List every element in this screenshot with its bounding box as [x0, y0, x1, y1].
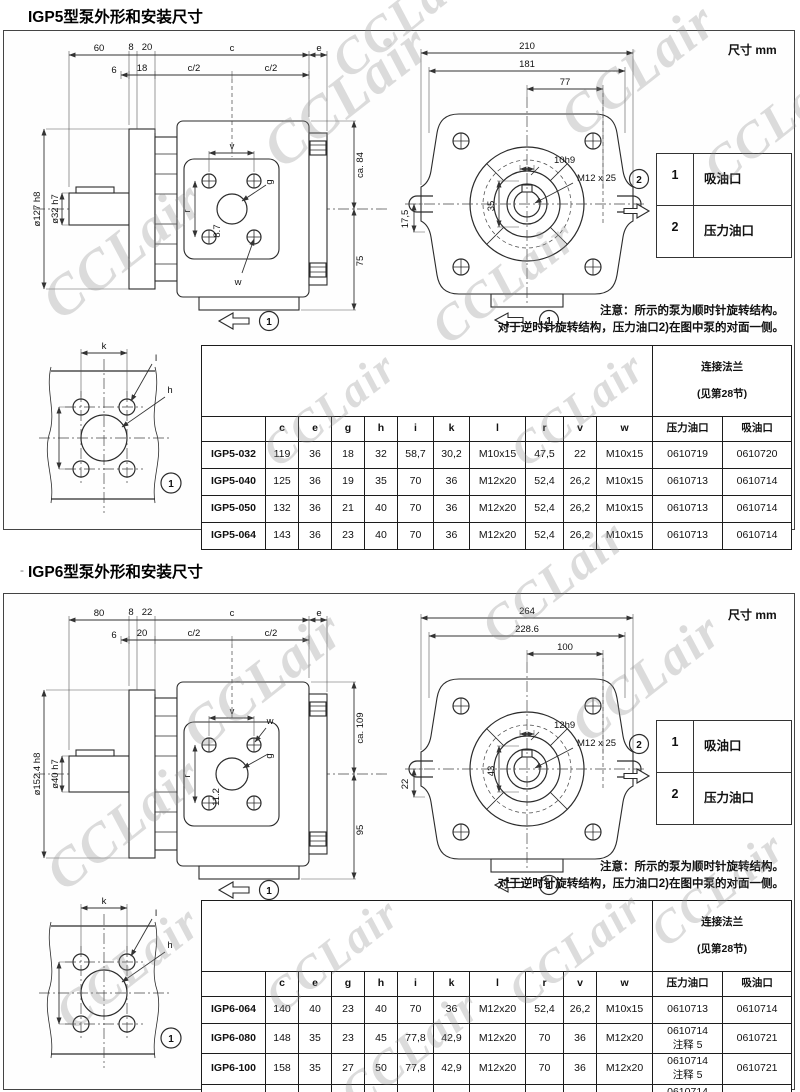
column-header: 吸油口 — [723, 972, 792, 997]
table-cell: 26,2 — [564, 469, 597, 496]
dim-label: ca. 84 — [355, 152, 366, 178]
table-row: IGP5-0641433623407036M12x2052,426,2M10x1… — [202, 523, 792, 550]
table-cell: 36 — [434, 496, 470, 523]
pump-front-geometry — [405, 97, 645, 307]
dim-label: l — [155, 353, 157, 364]
table-cell: 125 — [266, 469, 299, 496]
dim-label: ca. 109 — [355, 712, 366, 743]
column-header: 压力油口 — [653, 417, 723, 442]
column-header: i — [398, 972, 434, 997]
legend-row: 1 吸油口 — [657, 721, 792, 773]
column-header: 吸油口 — [723, 417, 792, 442]
port-legend-table: 1 吸油口 2 压力油口 — [656, 153, 792, 258]
table-cell: M12x20 — [470, 1054, 526, 1084]
dim-label: c — [230, 43, 235, 54]
legend-row: 2 压力油口 — [657, 206, 792, 258]
dim-label: w — [234, 277, 242, 288]
dim-label: M12 x 25 — [577, 173, 616, 184]
table-cell: 23 — [332, 523, 365, 550]
table-cell: 52,4 — [526, 997, 564, 1024]
table-row: IGP6-0641404023407036M12x2052,426,2M10x1… — [202, 997, 792, 1024]
table-cell: 47,5 — [526, 442, 564, 469]
dim-label: ø127 h8 — [32, 192, 43, 227]
column-header: l — [470, 972, 526, 997]
table-cell: 42,9 — [434, 1084, 470, 1092]
table-cell: M10x15 — [597, 442, 653, 469]
column-header: h — [365, 417, 398, 442]
table-row: IGP5-0401253619357036M12x2052,426,2M10x1… — [202, 469, 792, 496]
dim-label: 35 — [486, 201, 497, 212]
igp6-side-view-drawing: 80 8 22 c e 6 20 c/2 c/2 ø152.4 h8 ø40 h… — [14, 604, 399, 899]
table-cell: 36 — [564, 1084, 597, 1092]
table-cell: 0610713 — [653, 997, 723, 1024]
dimension-lines — [59, 904, 165, 1024]
legend-num: 1 — [657, 721, 694, 773]
dim-label: 43 — [486, 766, 497, 777]
table-cell: M10x15 — [597, 523, 653, 550]
column-header — [202, 972, 266, 997]
column-header: g — [332, 417, 365, 442]
column-header: i — [398, 417, 434, 442]
unit-label: 尺寸 mm — [728, 41, 777, 58]
table-cell: 50 — [365, 1084, 398, 1092]
igp6-front-view-drawing: 264 228.6 100 12h9 M12 x 25 43 22 2 1 — [399, 604, 651, 896]
table-cell: 36 — [434, 997, 470, 1024]
dim-label: c/2 — [188, 628, 201, 639]
table-cell: 140 — [266, 997, 299, 1024]
table-cell: 70 — [526, 1084, 564, 1092]
table-cell: 70 — [398, 997, 434, 1024]
dim-label: 181 — [519, 59, 535, 70]
table-row: IGP6-10015835275077,842,9M12x207036M12x2… — [202, 1054, 792, 1084]
table-cell: 0610721 — [723, 1024, 792, 1054]
table-cell: 0610714 — [723, 469, 792, 496]
pump-side-geometry — [34, 121, 390, 310]
table-cell: 36 — [434, 469, 470, 496]
table-cell: 36 — [299, 496, 332, 523]
dim-label: v — [230, 706, 235, 717]
table-column-header-row: c e g h i k l r v w 压力油口 吸油口 — [202, 972, 792, 997]
dim-label: 22 — [400, 779, 411, 790]
row-model-label: IGP5-064 — [202, 523, 266, 550]
dim-label: 6 — [111, 65, 116, 76]
dim-label: M12 x 25 — [577, 738, 616, 749]
column-header: e — [299, 417, 332, 442]
dim-label: 8.7 — [212, 224, 223, 237]
column-header: g — [332, 972, 365, 997]
dim-label: 10h9 — [554, 155, 575, 166]
section-title-igp5: IGP5型泵外形和安装尺寸 — [28, 5, 203, 27]
table-cell: 0610713 — [653, 469, 723, 496]
dim-label: g — [264, 179, 275, 184]
table-cell: 36 — [299, 523, 332, 550]
table-cell: 0610713 — [653, 523, 723, 550]
table-cell: 0610713 — [653, 496, 723, 523]
legend-label: 压力油口 — [694, 206, 792, 258]
table-cell: 26,2 — [564, 523, 597, 550]
table-row: IGP5-0501323621407036M12x2052,426,2M10x1… — [202, 496, 792, 523]
table-cell: 0610721 — [723, 1054, 792, 1084]
pump-front-geometry — [405, 662, 645, 872]
dim-label: r — [182, 774, 193, 777]
table-cell: 40 — [299, 1084, 332, 1092]
table-cell: M10x15 — [597, 469, 653, 496]
dim-label: 8 — [128, 607, 133, 618]
table-cell: 50 — [365, 1054, 398, 1084]
table-cell: M10x15 — [597, 997, 653, 1024]
dim-label: c/2 — [265, 63, 278, 74]
table-cell: 58,7 — [398, 442, 434, 469]
table-cell: 52,4 — [526, 496, 564, 523]
table-cell: M12x20 — [470, 469, 526, 496]
rotation-note: 注意：所示的泵为顺时针旋转结构。 对于逆时针旋转结构，压力油口2)在图中泵的对面… — [498, 859, 784, 894]
column-header — [202, 417, 266, 442]
column-header: v — [564, 417, 597, 442]
table-cell: 52,4 — [526, 523, 564, 550]
empty-header-cell — [202, 901, 653, 972]
table-cell: 70 — [398, 469, 434, 496]
note-line: 注意：所示的泵为顺时针旋转结构。 — [498, 859, 784, 876]
table-cell: 36 — [434, 523, 470, 550]
dim-label: 8 — [128, 42, 133, 53]
table-cell: 23 — [332, 1024, 365, 1054]
dim-label: h — [167, 385, 172, 396]
table-column-header-row: c e g h i k l r v w 压力油口 吸油口 — [202, 417, 792, 442]
row-model-label: IGP5-040 — [202, 469, 266, 496]
table-row: IGP6-08014835234577,842,9M12x207036M12x2… — [202, 1024, 792, 1054]
table-cell: 148 — [266, 1024, 299, 1054]
column-header: w — [597, 972, 653, 997]
igp5-flange-detail-drawing: k l h 1 — [19, 331, 194, 526]
column-header: k — [434, 972, 470, 997]
dim-label: c/2 — [265, 628, 278, 639]
rotation-note: 注意：所示的泵为顺时针旋转结构。 对于逆时针旋转结构，压力油口2)在图中泵的对面… — [498, 303, 784, 338]
port-number: 1 — [266, 317, 272, 328]
dim-label: c — [230, 608, 235, 619]
dim-label: g — [264, 753, 275, 758]
igp6-dimension-table: 连接法兰 (见第28节) c e g h i k l r v w 压力油口 吸油… — [201, 900, 792, 1092]
table-cell: 0610719 — [653, 442, 723, 469]
igp5-drawing-frame: 尺寸 mm — [3, 30, 795, 530]
note-line: 注意：所示的泵为顺时针旋转结构。 — [498, 303, 784, 320]
dim-label: r — [182, 209, 193, 212]
dim-label: 210 — [519, 41, 535, 52]
table-cell: 27 — [332, 1054, 365, 1084]
table-cell: 45 — [365, 1024, 398, 1054]
legend-row: 1 吸油口 — [657, 154, 792, 206]
pump-side-geometry — [34, 682, 390, 879]
table-cell: 42,9 — [434, 1024, 470, 1054]
column-header: l — [470, 417, 526, 442]
table-cell: 30,2 — [434, 442, 470, 469]
column-header: c — [266, 972, 299, 997]
view-number: 1 — [168, 479, 174, 490]
flange-header-sub: (见第28节) — [654, 388, 790, 402]
dim-label: 17,5 — [400, 210, 411, 229]
table-cell: 77,8 — [398, 1024, 434, 1054]
dim-label: e — [316, 608, 321, 619]
note-line: 对于逆时针旋转结构，压力油口2)在图中泵的对面一侧。 — [498, 876, 784, 893]
table-cell: M10x15 — [470, 442, 526, 469]
table-header-row: 连接法兰 (见第28节) — [202, 346, 792, 417]
table-cell: 70 — [526, 1054, 564, 1084]
column-header: e — [299, 972, 332, 997]
table-cell: 0610714 — [723, 523, 792, 550]
table-cell: 0610714 — [723, 997, 792, 1024]
datasheet-page: CCLair CCLair CCLair CCLair CCLair CCLai… — [0, 0, 800, 1092]
flange-header-sub: (见第28节) — [654, 943, 790, 957]
row-model-label: IGP5-050 — [202, 496, 266, 523]
dim-label: 95 — [355, 825, 366, 836]
table-cell: 23 — [332, 997, 365, 1024]
view-number: 1 — [168, 1034, 174, 1045]
table-cell: 40 — [365, 523, 398, 550]
table-row: IGP6-12517040305077,842,9M12x207036M12x2… — [202, 1084, 792, 1092]
column-header: h — [365, 972, 398, 997]
dim-label: 75 — [355, 256, 366, 267]
dim-label: w — [266, 716, 274, 727]
table-cell: 0610714 — [723, 496, 792, 523]
column-header: 压力油口 — [653, 972, 723, 997]
table-cell: 70 — [398, 496, 434, 523]
table-cell: 18 — [332, 442, 365, 469]
igp5-side-view-drawing: 60 8 20 c e 6 18 c/2 c/2 ø127 h8 ø32 h7 … — [14, 39, 399, 334]
table-cell: 77,8 — [398, 1084, 434, 1092]
table-cell: 0610714 注释 5 — [653, 1024, 723, 1054]
table-cell: M12x20 — [597, 1054, 653, 1084]
dim-label: ø40 h7 — [50, 759, 61, 789]
legend-label: 压力油口 — [694, 773, 792, 825]
section-title-igp6: IGP6型泵外形和安装尺寸 — [28, 560, 203, 582]
dim-label: 12h9 — [554, 720, 575, 731]
table-cell: 0610714 注释 5 — [653, 1084, 723, 1092]
table-cell: 0610721 — [723, 1084, 792, 1092]
dimension-lines — [59, 349, 165, 469]
table-cell: 0610720 — [723, 442, 792, 469]
column-header: w — [597, 417, 653, 442]
column-header: r — [526, 972, 564, 997]
dim-label: h — [167, 940, 172, 951]
dim-label: 264 — [519, 606, 535, 617]
dim-label: 77 — [560, 77, 571, 88]
table-cell: 132 — [266, 496, 299, 523]
table-cell: 36 — [564, 1024, 597, 1054]
table-cell: M12x20 — [470, 523, 526, 550]
table-cell: 35 — [299, 1024, 332, 1054]
port-legend-table: 1 吸油口 2 压力油口 — [656, 720, 792, 825]
dim-label: ø152.4 h8 — [32, 753, 43, 796]
table-cell: 36 — [299, 469, 332, 496]
table-cell: 21 — [332, 496, 365, 523]
table-cell: 22 — [564, 442, 597, 469]
column-header: v — [564, 972, 597, 997]
dim-label: 228.6 — [515, 624, 539, 635]
port-number: 2 — [636, 175, 642, 186]
column-header: k — [434, 417, 470, 442]
legend-label: 吸油口 — [694, 721, 792, 773]
column-header: r — [526, 417, 564, 442]
row-model-label: IGP6-080 — [202, 1024, 266, 1054]
legend-label: 吸油口 — [694, 154, 792, 206]
flange-header-title: 连接法兰 — [654, 916, 790, 930]
table-cell: 35 — [299, 1054, 332, 1084]
table-cell: 77,8 — [398, 1054, 434, 1084]
table-cell: 143 — [266, 523, 299, 550]
table-cell: 26,2 — [564, 496, 597, 523]
legend-num: 2 — [657, 773, 694, 825]
flange-header-cell: 连接法兰 (见第28节) — [653, 346, 792, 417]
table-cell: 36 — [299, 442, 332, 469]
empty-header-cell — [202, 346, 653, 417]
table-cell: M12x20 — [470, 997, 526, 1024]
dim-label: 18 — [137, 63, 148, 74]
dim-label: 11.2 — [211, 788, 222, 806]
row-model-label: IGP5-032 — [202, 442, 266, 469]
dim-label: 20 — [142, 42, 153, 53]
title-bullet: - — [20, 563, 24, 577]
table-cell: M10x15 — [597, 496, 653, 523]
dim-label: 20 — [137, 628, 148, 639]
table-cell: 158 — [266, 1054, 299, 1084]
table-header-row: 连接法兰 (见第28节) — [202, 901, 792, 972]
port-number: 2 — [636, 740, 642, 751]
dim-label: 60 — [94, 43, 105, 54]
table-cell: 26,2 — [564, 997, 597, 1024]
table-cell: M12x20 — [470, 496, 526, 523]
dim-label: c/2 — [188, 63, 201, 74]
legend-num: 2 — [657, 206, 694, 258]
table-cell: 32 — [365, 442, 398, 469]
table-cell: M12x20 — [470, 1084, 526, 1092]
table-cell: 19 — [332, 469, 365, 496]
table-cell: 70 — [526, 1024, 564, 1054]
unit-label: 尺寸 mm — [728, 606, 777, 623]
igp6-flange-detail-drawing: k l h 1 — [19, 886, 194, 1081]
dim-label: l — [155, 908, 157, 919]
igp5-front-view-drawing: 210 181 77 10h9 M12 x 25 35 17,5 2 1 — [399, 39, 651, 331]
table-cell: 36 — [564, 1054, 597, 1084]
dim-label: ø32 h7 — [50, 194, 61, 224]
igp5-dimension-table: 连接法兰 (见第28节) c e g h i k l r v w 压力油口 吸油… — [201, 345, 792, 550]
table-cell: M12x20 — [597, 1024, 653, 1054]
table-row: IGP5-03211936183258,730,2M10x1547,522M10… — [202, 442, 792, 469]
table-cell: 40 — [365, 997, 398, 1024]
column-header: c — [266, 417, 299, 442]
row-model-label: IGP6-064 — [202, 997, 266, 1024]
igp6-drawing-frame: 尺寸 mm — [3, 593, 795, 1090]
flange-header-cell: 连接法兰 (见第28节) — [653, 901, 792, 972]
table-cell: 52,4 — [526, 469, 564, 496]
table-cell: 170 — [266, 1084, 299, 1092]
dim-label: v — [230, 141, 235, 152]
dim-label: 6 — [111, 630, 116, 641]
table-cell: 119 — [266, 442, 299, 469]
table-cell: 35 — [365, 469, 398, 496]
table-cell: M12x20 — [470, 1024, 526, 1054]
table-cell: 0610714 注释 5 — [653, 1054, 723, 1084]
table-cell: M12x20 — [597, 1084, 653, 1092]
dim-label: 100 — [557, 642, 573, 653]
flange-header-title: 连接法兰 — [654, 361, 790, 375]
row-model-label: IGP6-100 — [202, 1054, 266, 1084]
note-line: 对于逆时针旋转结构，压力油口2)在图中泵的对面一侧。 — [498, 320, 784, 337]
dim-label: k — [102, 341, 107, 352]
table-cell: 40 — [299, 997, 332, 1024]
dim-label: 22 — [142, 607, 153, 618]
dim-label: k — [102, 896, 107, 907]
legend-num: 1 — [657, 154, 694, 206]
table-cell: 30 — [332, 1084, 365, 1092]
dim-label: e — [316, 43, 321, 54]
legend-row: 2 压力油口 — [657, 773, 792, 825]
row-model-label: IGP6-125 — [202, 1084, 266, 1092]
dim-label: 80 — [94, 608, 105, 619]
table-cell: 42,9 — [434, 1054, 470, 1084]
table-cell: 70 — [398, 523, 434, 550]
port-number: 1 — [266, 886, 272, 897]
table-cell: 40 — [365, 496, 398, 523]
